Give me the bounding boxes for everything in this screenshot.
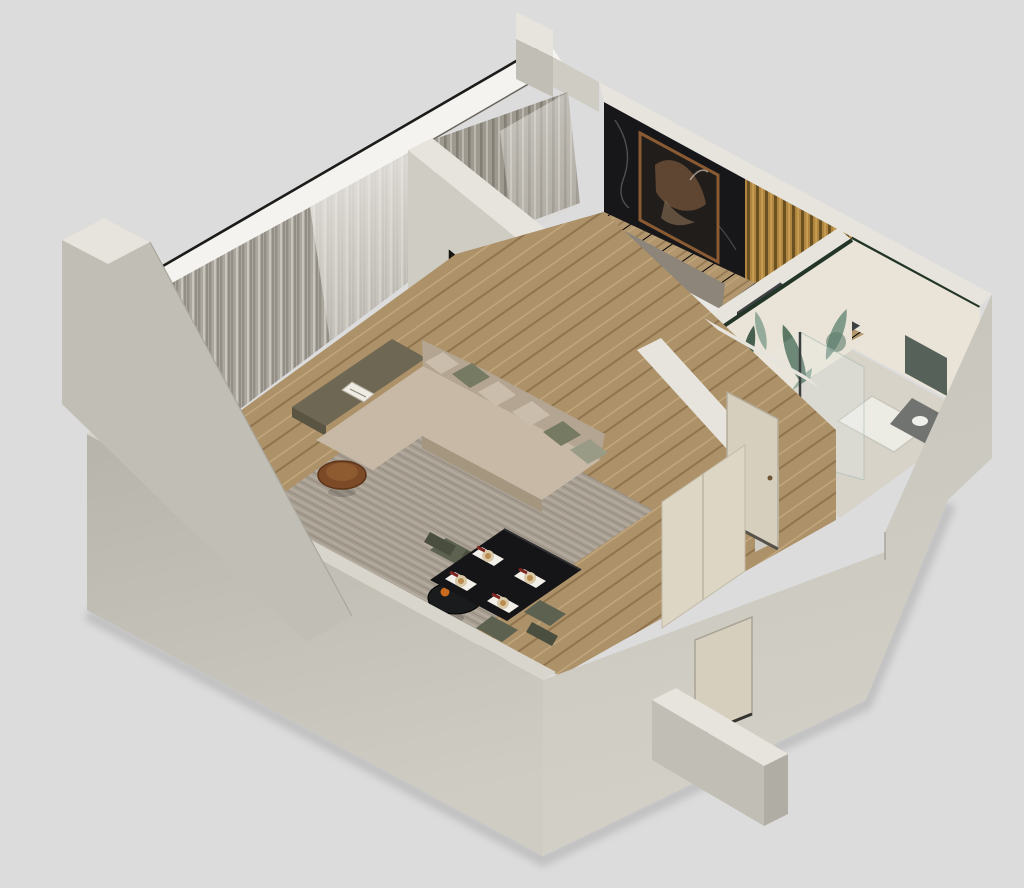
apartment-isometric-svg <box>0 0 1024 888</box>
door-handle <box>768 476 773 481</box>
sink <box>912 416 928 426</box>
floor-plan-render <box>0 0 1024 888</box>
